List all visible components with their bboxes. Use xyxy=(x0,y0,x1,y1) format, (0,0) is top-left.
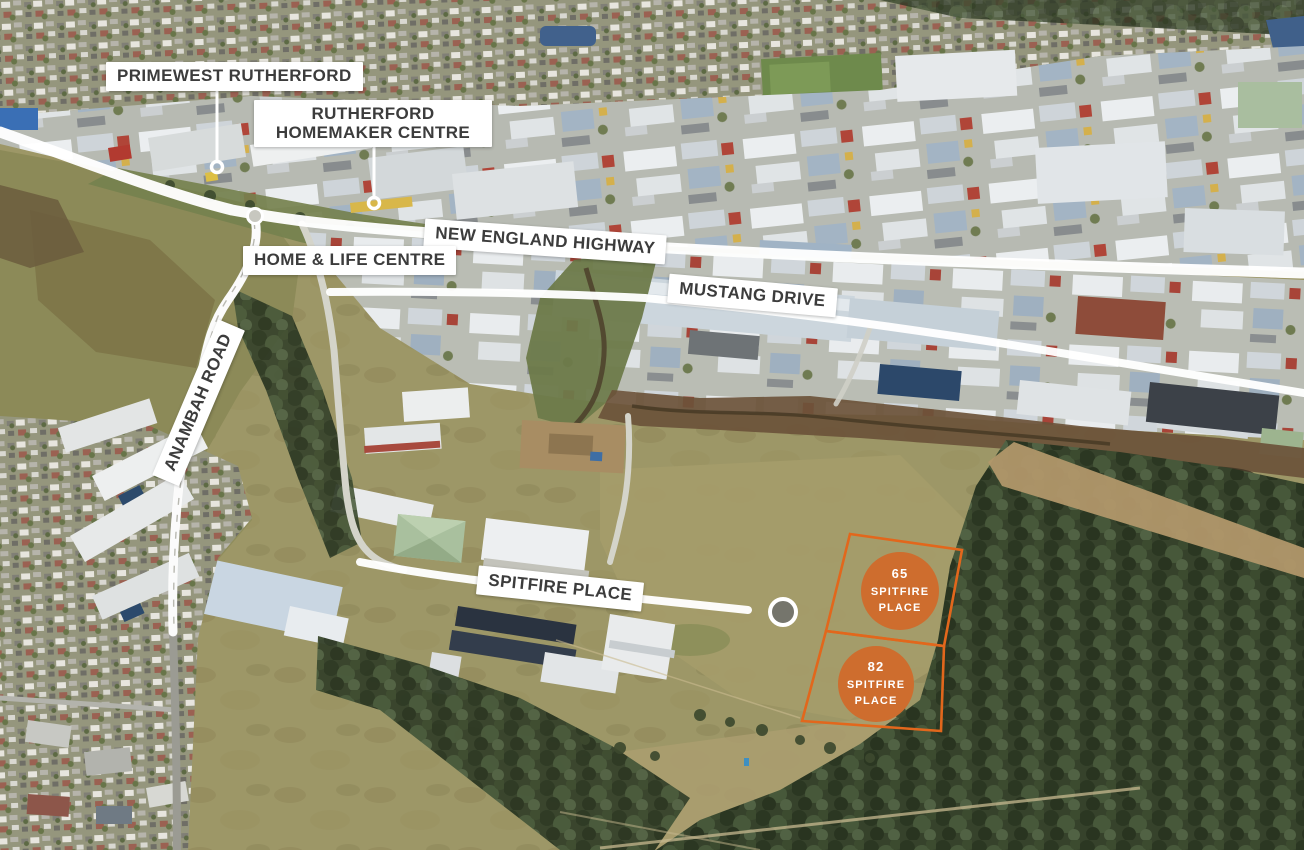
lot-65-marker: 65 SPITFIRE PLACE xyxy=(861,552,939,630)
label-primewest-rutherford: PRIMEWEST RUTHERFORD xyxy=(106,62,363,91)
label-rutherford-homemaker-centre: RUTHERFORD HOMEMAKER CENTRE xyxy=(254,100,492,147)
lot-82-street2: PLACE xyxy=(855,693,898,710)
lot-82-number: 82 xyxy=(868,658,885,677)
lot-82-street: SPITFIRE xyxy=(847,677,905,694)
pond xyxy=(540,26,596,46)
lot-65-number: 65 xyxy=(892,565,909,584)
lot-65-street: SPITFIRE xyxy=(871,584,929,601)
roundabout xyxy=(248,209,263,224)
label-home-and-life-centre: HOME & LIFE CENTRE xyxy=(243,246,456,275)
lot-82-marker: 82 SPITFIRE PLACE xyxy=(838,646,914,722)
construction-pad xyxy=(519,420,625,473)
lot-65-street2: PLACE xyxy=(879,600,922,617)
aerial-map: PRIMEWEST RUTHERFORD RUTHERFORD HOMEMAKE… xyxy=(0,0,1304,850)
cul-de-sac xyxy=(770,599,796,625)
